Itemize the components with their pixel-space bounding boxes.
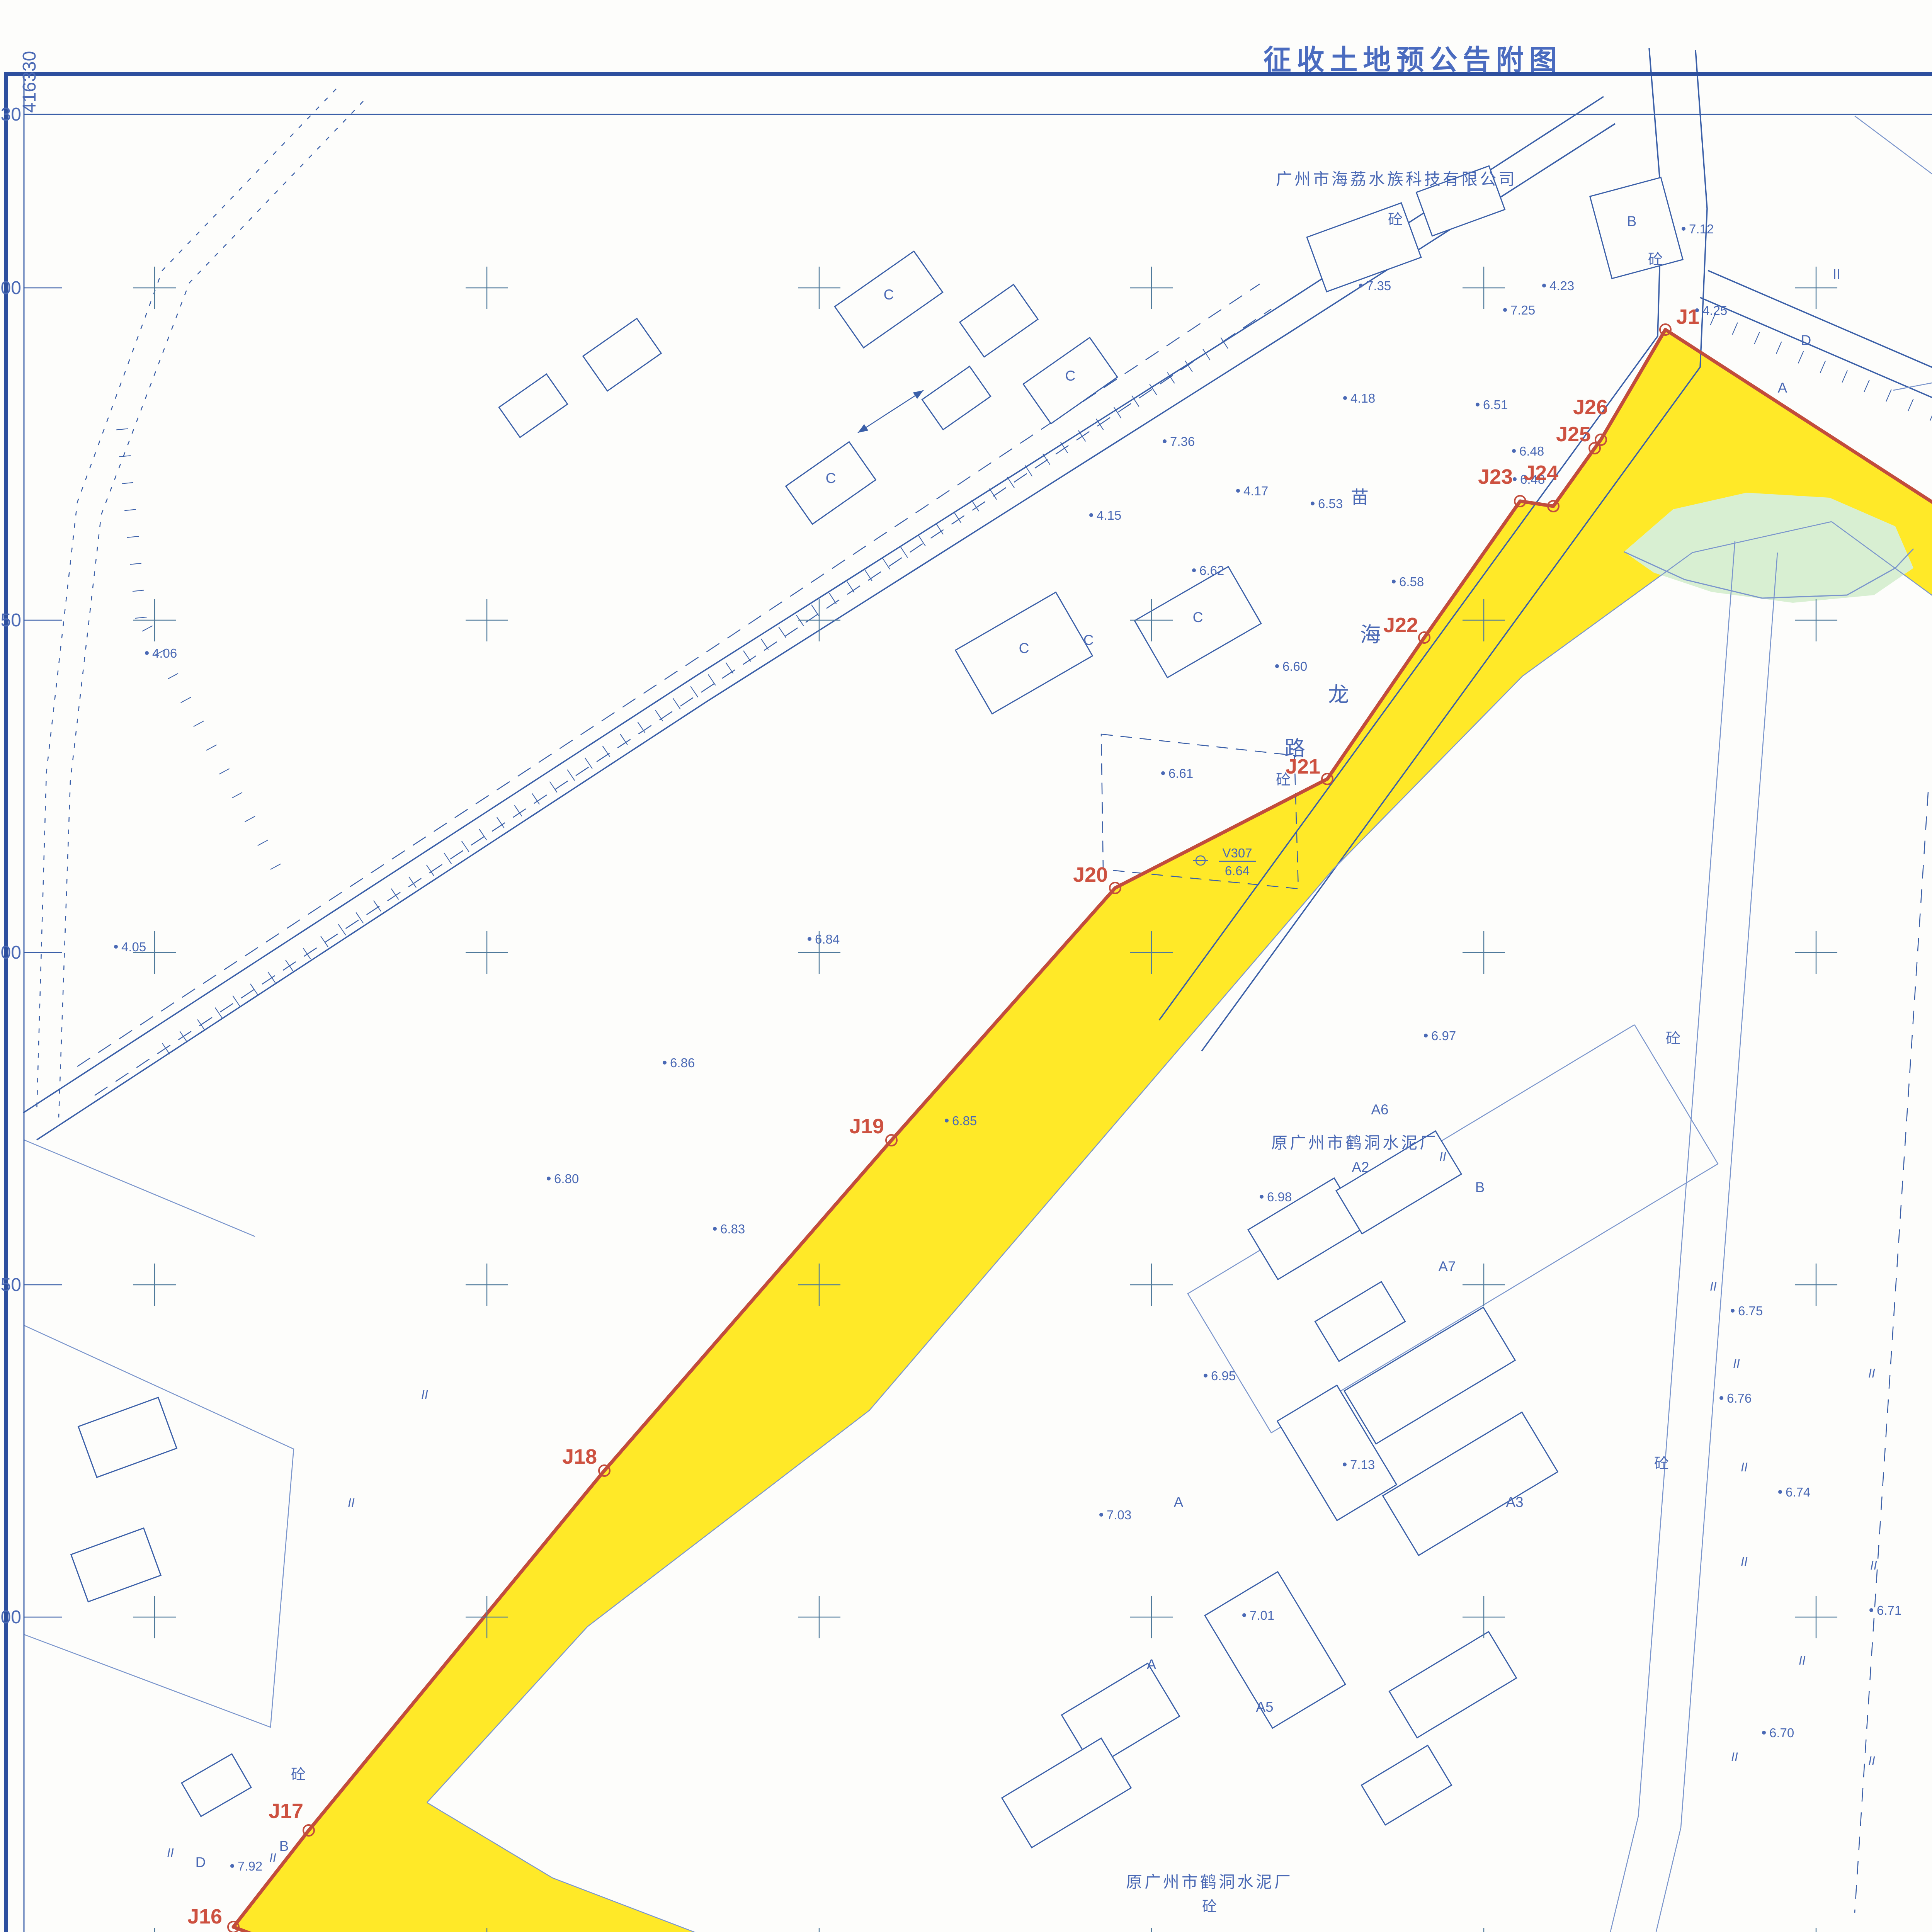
- elevation-point: [1392, 580, 1396, 583]
- land-class-mark: II: [1868, 1754, 1875, 1768]
- building-code-label: A3: [1506, 1494, 1523, 1510]
- site-name-label: 原广州市鹤洞水泥厂: [1271, 1134, 1438, 1152]
- building-code-label: B: [279, 1838, 289, 1854]
- road-name-char: 海: [1360, 623, 1381, 646]
- elevation-dot: [1731, 1309, 1735, 1313]
- axis-label-left: 600: [0, 1607, 21, 1628]
- elevation-dot: [230, 1864, 234, 1868]
- elevation-value: 4.15: [1097, 508, 1121, 522]
- elevation-point: [1731, 1309, 1735, 1313]
- benchmark-elevation: 6.64: [1225, 864, 1250, 878]
- elevation-dot: [1682, 227, 1685, 231]
- elevation-point: [1089, 513, 1093, 517]
- boundary-point-label: J21: [1286, 755, 1320, 778]
- land-class-mark: II: [1439, 1150, 1446, 1163]
- elevation-dot: [945, 1119, 949, 1122]
- building-code-label: A7: [1438, 1259, 1456, 1274]
- concrete-mark: 砼: [1388, 212, 1403, 228]
- elevation-point: [547, 1177, 551, 1180]
- elevation-dot: [1089, 513, 1093, 517]
- elevation-value: 6.58: [1399, 575, 1424, 589]
- map-canvas: IIIIIIIIIIIIIIIIIIIIIIIIIIIIIIIIIIIIIIII…: [0, 0, 1932, 1932]
- concrete-mark: 砼: [1202, 1899, 1217, 1915]
- elevation-point: [145, 651, 149, 655]
- elevation-value: 6.85: [952, 1114, 977, 1128]
- elevation-value: 6.84: [815, 932, 840, 946]
- elevation-dot: [1513, 477, 1517, 481]
- land-class-mark: II: [269, 1851, 276, 1865]
- boundary-point-label: J16: [187, 1905, 222, 1928]
- elevation-point: [1762, 1731, 1766, 1735]
- land-class-mark: II: [167, 1846, 174, 1860]
- elevation-value: 6.62: [1199, 563, 1224, 578]
- building-code-label: A5: [1256, 1699, 1273, 1715]
- elevation-value: 6.98: [1267, 1190, 1292, 1204]
- boundary-point-label: J18: [562, 1445, 597, 1468]
- boundary-point-label: J20: [1073, 863, 1108, 886]
- axis-label-left: 750: [0, 610, 21, 631]
- elevation-value: 6.70: [1769, 1726, 1794, 1740]
- site-name-label: 广州市海荔水族科技有限公司: [1276, 170, 1517, 188]
- building-code-label: D: [1801, 332, 1811, 348]
- elevation-point: [1099, 1513, 1103, 1517]
- elevation-dot: [1392, 580, 1396, 583]
- elevation-value: 4.23: [1549, 279, 1574, 293]
- elevation-point: [1512, 449, 1516, 453]
- site-name-label: 原广州市鹤洞水泥厂: [1126, 1873, 1293, 1891]
- elevation-value: 6.83: [720, 1222, 745, 1236]
- elevation-dot: [547, 1177, 551, 1180]
- boundary-point-label: J17: [269, 1799, 303, 1823]
- elevation-value: 6.61: [1168, 766, 1193, 781]
- building-code-label: C: [1065, 368, 1076, 384]
- elevation-dot: [1503, 308, 1507, 312]
- elevation-value: 7.25: [1510, 303, 1535, 317]
- elevation-dot: [1236, 489, 1240, 493]
- elevation-value: 6.95: [1211, 1369, 1236, 1383]
- elevation-dot: [1424, 1034, 1428, 1037]
- building-code-label: C: [884, 287, 894, 303]
- land-class-mark: II: [348, 1496, 355, 1510]
- building-code-label: A6: [1371, 1102, 1388, 1117]
- elevation-value: 6.48: [1519, 444, 1544, 458]
- elevation-value: 6.53: [1318, 497, 1343, 511]
- elevation-value: 6.75: [1738, 1304, 1763, 1318]
- elevation-dot: [663, 1061, 667, 1065]
- elevation-dot: [1311, 502, 1315, 505]
- elevation-value: 6.60: [1282, 659, 1307, 673]
- elevation-value: 7.35: [1366, 279, 1391, 293]
- elevation-dot: [1869, 1608, 1873, 1612]
- boundary-point-label: J22: [1383, 614, 1418, 637]
- elevation-point: [1204, 1374, 1207, 1378]
- elevation-dot: [1719, 1396, 1723, 1400]
- land-class-mark: II: [1710, 1279, 1717, 1293]
- axis-label-left: 650: [0, 1275, 21, 1295]
- land-class-mark: II: [1799, 1653, 1806, 1667]
- building-code-label: B: [1627, 213, 1637, 229]
- elevation-point: [1476, 403, 1480, 406]
- elevation-value: 6.80: [554, 1172, 579, 1186]
- building-code-label: C: [1019, 640, 1029, 656]
- boundary-point-label: J25: [1556, 423, 1591, 446]
- boundary-point-label: J23: [1478, 465, 1513, 488]
- elevation-point: [945, 1119, 949, 1122]
- elevation-dot: [1359, 284, 1363, 287]
- axis-label-left: 800: [0, 278, 21, 298]
- page-title: 征收土地预公告附图: [0, 37, 1932, 78]
- road-name-char: 苗: [1351, 487, 1369, 507]
- building-code-label: C: [1083, 632, 1094, 648]
- building-code-label: A: [1147, 1656, 1156, 1672]
- elevation-dot: [1260, 1195, 1264, 1199]
- elevation-point: [1542, 284, 1546, 287]
- elevation-value: 6.97: [1431, 1029, 1456, 1043]
- axis-label-left: 700: [0, 942, 21, 963]
- elevation-dot: [1343, 396, 1347, 400]
- elevation-point: [1513, 477, 1517, 481]
- elevation-dot: [808, 937, 811, 941]
- elevation-point: [1275, 664, 1279, 668]
- elevation-point: [1719, 1396, 1723, 1400]
- building-code-label: A: [1174, 1494, 1184, 1510]
- elevation-point: [663, 1061, 667, 1065]
- concrete-mark: 砼: [1654, 1456, 1669, 1472]
- elevation-value: 4.06: [152, 646, 177, 660]
- elevation-value: 4.18: [1350, 391, 1375, 405]
- concrete-mark: 砼: [291, 1767, 306, 1783]
- announcement-map-page: 征收土地预公告附图 IIIIIIIIIIIIIIIIIIIIIIIIIIIIII…: [0, 0, 1932, 1932]
- elevation-point: [1778, 1490, 1782, 1494]
- building-code-label: II: [1833, 266, 1841, 282]
- building-code-label: B: [1475, 1179, 1485, 1195]
- land-class-mark: II: [1868, 1366, 1875, 1380]
- elevation-point: [1161, 771, 1165, 775]
- elevation-value: 4.17: [1243, 484, 1268, 498]
- elevation-dot: [1778, 1490, 1782, 1494]
- elevation-point: [1311, 502, 1315, 505]
- land-class-mark: II: [1741, 1554, 1748, 1568]
- elevation-point: [808, 937, 811, 941]
- elevation-value: 6.86: [670, 1056, 695, 1070]
- elevation-dot: [1542, 284, 1546, 287]
- building-code-label: A2: [1352, 1159, 1369, 1175]
- elevation-point: [114, 945, 118, 949]
- elevation-dot: [1476, 403, 1480, 406]
- land-class-mark: II: [1731, 1750, 1738, 1764]
- elevation-value: 4.05: [121, 940, 146, 954]
- elevation-value: 7.03: [1107, 1508, 1131, 1522]
- elevation-point: [1163, 439, 1167, 443]
- land-class-mark: II: [1741, 1460, 1748, 1474]
- elevation-dot: [1204, 1374, 1207, 1378]
- boundary-point-label: J24: [1524, 461, 1558, 485]
- boundary-point-label: J1: [1676, 305, 1699, 328]
- elevation-dot: [1161, 771, 1165, 775]
- elevation-dot: [1192, 568, 1196, 572]
- elevation-dot: [1242, 1613, 1246, 1617]
- axis-label-left: 1830: [0, 104, 21, 125]
- elevation-value: 6.76: [1727, 1391, 1752, 1405]
- elevation-point: [1503, 308, 1507, 312]
- elevation-value: 7.01: [1250, 1608, 1274, 1622]
- road-name-char: 龙: [1328, 683, 1349, 706]
- elevation-point: [1242, 1613, 1246, 1617]
- building-code-label: A: [1778, 380, 1787, 396]
- elevation-dot: [1275, 664, 1279, 668]
- building-code-label: C: [1193, 609, 1203, 625]
- concrete-mark: 砼: [1648, 252, 1663, 268]
- elevation-value: 7.13: [1350, 1458, 1375, 1472]
- elevation-dot: [1512, 449, 1516, 453]
- elevation-value: 7.92: [238, 1859, 262, 1873]
- elevation-value: 7.12: [1689, 222, 1714, 236]
- elevation-point: [713, 1227, 717, 1231]
- land-class-mark: II: [1733, 1357, 1740, 1371]
- elevation-value: 4.25: [1702, 303, 1727, 318]
- building-code-label: C: [826, 470, 836, 486]
- elevation-value: 6.51: [1483, 398, 1508, 412]
- building-code-label: D: [196, 1854, 206, 1870]
- elevation-dot: [145, 651, 149, 655]
- elevation-point: [1869, 1608, 1873, 1612]
- elevation-dot: [713, 1227, 717, 1231]
- elevation-dot: [1762, 1731, 1766, 1735]
- boundary-point-label: J26: [1573, 396, 1608, 419]
- elevation-dot: [1343, 1463, 1347, 1466]
- elevation-point: [1192, 568, 1196, 572]
- elevation-value: 6.74: [1786, 1485, 1810, 1499]
- elevation-value: 6.71: [1877, 1603, 1901, 1617]
- elevation-point: [1682, 227, 1685, 231]
- elevation-point: [1236, 489, 1240, 493]
- boundary-point-label: J19: [849, 1115, 884, 1138]
- elevation-point: [230, 1864, 234, 1868]
- elevation-point: [1424, 1034, 1428, 1037]
- elevation-value: 7.36: [1170, 434, 1195, 449]
- land-class-mark: II: [421, 1388, 428, 1401]
- elevation-dot: [1163, 439, 1167, 443]
- elevation-point: [1260, 1195, 1264, 1199]
- benchmark-id: V307: [1222, 846, 1252, 860]
- elevation-point: [1343, 1463, 1347, 1466]
- elevation-point: [1343, 396, 1347, 400]
- elevation-point: [1359, 284, 1363, 287]
- elevation-dot: [114, 945, 118, 949]
- land-class-mark: II: [1870, 1558, 1877, 1572]
- elevation-dot: [1099, 1513, 1103, 1517]
- concrete-mark: 砼: [1666, 1031, 1680, 1047]
